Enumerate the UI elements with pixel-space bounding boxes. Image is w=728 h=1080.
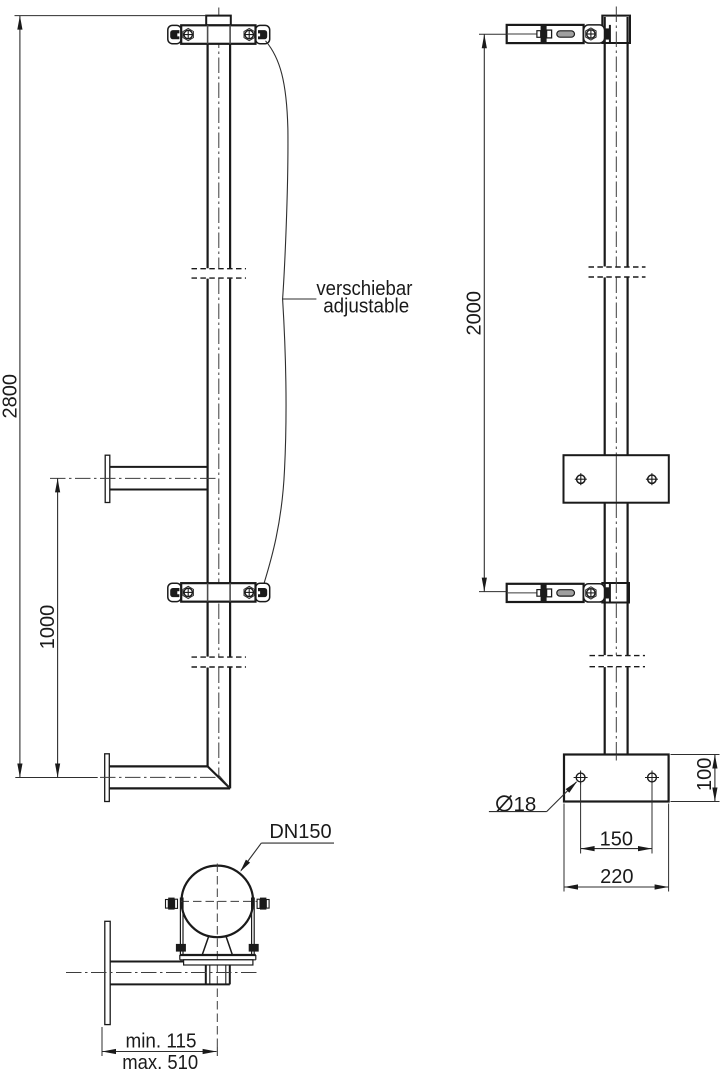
svg-text:1000: 1000 xyxy=(37,605,59,650)
svg-text:max. 510: max. 510 xyxy=(122,1052,198,1074)
svg-text:18: 18 xyxy=(513,793,536,816)
svg-text:100: 100 xyxy=(694,758,716,791)
svg-text:min. 115: min. 115 xyxy=(126,1031,197,1053)
svg-text:220: 220 xyxy=(600,866,633,888)
svg-text:DN150: DN150 xyxy=(269,821,331,843)
svg-text:2800: 2800 xyxy=(0,374,21,419)
svg-text:adjustable: adjustable xyxy=(323,296,409,318)
svg-text:2000: 2000 xyxy=(464,291,486,336)
svg-text:150: 150 xyxy=(600,828,633,850)
